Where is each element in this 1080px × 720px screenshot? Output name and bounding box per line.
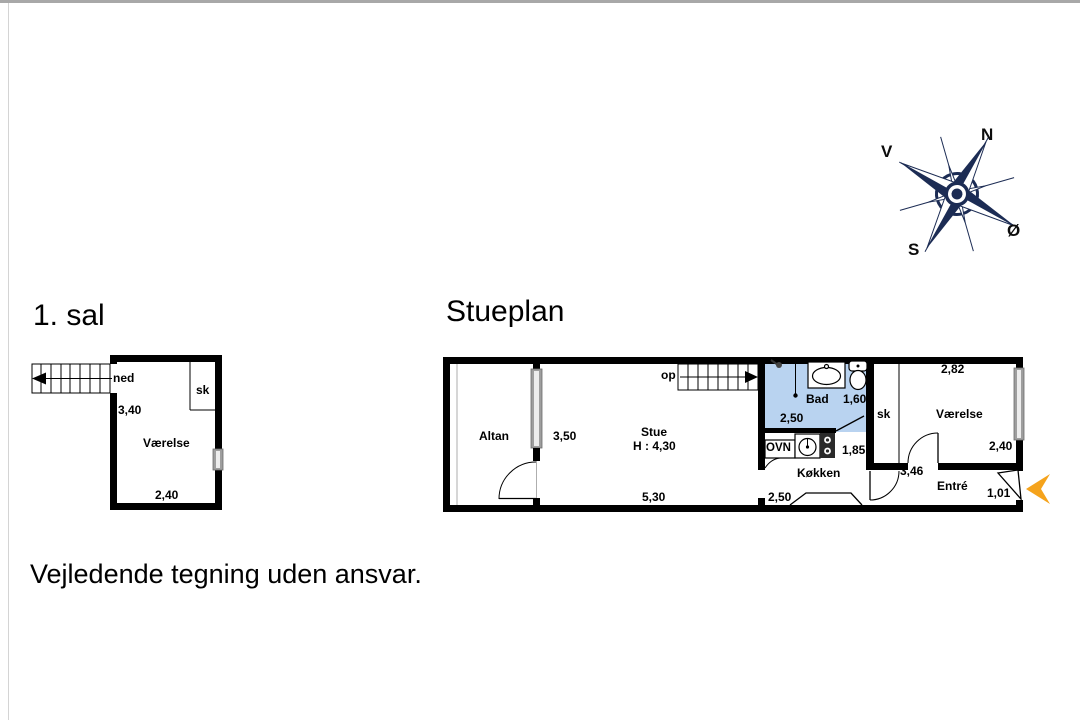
kitchen-width-dim: 2,50 xyxy=(768,491,791,503)
stairs-down xyxy=(32,364,112,393)
prev-navigation-arrow[interactable] xyxy=(1026,474,1050,504)
first-floor-title: 1. sal xyxy=(33,301,105,331)
bedroom-window xyxy=(1014,368,1024,440)
compass-rose xyxy=(867,104,1046,283)
first-floor-depth-dim: 3,40 xyxy=(118,404,141,416)
first-floor-closet-label: sk xyxy=(196,384,209,396)
bathroom-width-dim: 2,50 xyxy=(780,412,803,424)
ground-floor-title: Stueplan xyxy=(446,297,564,327)
ground-closet-label: sk xyxy=(877,408,890,420)
compass-label-north: N xyxy=(981,126,993,143)
hall-label: Entré xyxy=(937,480,968,492)
disclaimer-text: Vejledende tegning uden ansvar. xyxy=(30,561,422,588)
compass-label-west: V xyxy=(881,143,892,160)
stairs-up-label: op xyxy=(661,369,676,381)
compass-label-south: S xyxy=(908,241,919,258)
living-room-label: Stue xyxy=(641,426,667,438)
entry-width-dim: 1,01 xyxy=(987,487,1010,499)
first-floor-window xyxy=(213,449,223,470)
balcony-label: Altan xyxy=(479,430,509,442)
living-width-dim: 5,30 xyxy=(642,491,665,503)
stove-fixture xyxy=(820,433,835,458)
oven-label: OVN xyxy=(766,443,791,455)
bathroom-depth-dim: 1,60 xyxy=(843,393,866,405)
bathroom-right-wall xyxy=(866,364,874,470)
bathroom-label: Bad xyxy=(806,393,829,405)
ceiling-height-label: H : 4,30 xyxy=(633,440,676,452)
hall-wall-right xyxy=(938,463,1023,470)
living-kitchen-wall xyxy=(758,364,765,470)
first-floor-room-label: Værelse xyxy=(143,437,190,449)
bedroom-depth-dim: 2,40 xyxy=(989,440,1012,452)
bathroom-bottom-wall xyxy=(762,428,836,433)
sink-fixture xyxy=(808,362,845,388)
stairs-down-arrow-icon xyxy=(32,373,46,385)
toilet-fixture xyxy=(849,361,867,390)
balcony-depth-dim: 3,50 xyxy=(553,430,576,442)
stairs-down-label: ned xyxy=(113,372,134,384)
kitchen-label: Køkken xyxy=(797,467,840,479)
kitchen-sink-fixture xyxy=(795,434,820,458)
floor-plan-page: 1. sal Stueplan ned 3,40 sk Værelse 2,40… xyxy=(0,0,1080,720)
bedroom-label: Værelse xyxy=(936,408,983,420)
kitchen-depth-dim: 1,85 xyxy=(842,444,865,456)
hall-width-dim: 3,46 xyxy=(900,465,923,477)
bedroom-width-dim: 2,82 xyxy=(941,363,964,375)
compass-label-east: Ø xyxy=(1007,222,1020,239)
floor-plan-drawing xyxy=(0,0,1080,720)
first-floor-width-dim: 2,40 xyxy=(155,489,178,501)
